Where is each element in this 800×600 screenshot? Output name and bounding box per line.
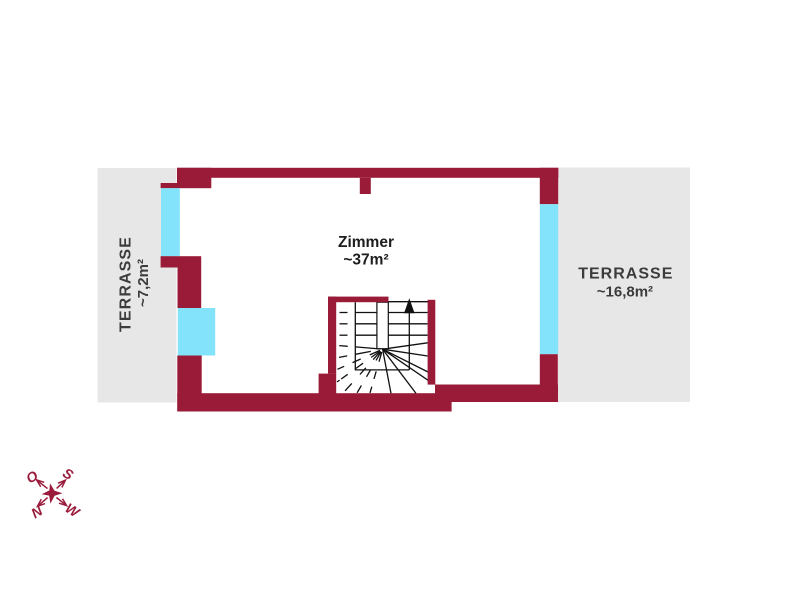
svg-text:~16,8m²: ~16,8m² (597, 283, 653, 300)
svg-text:TERRASSE: TERRASSE (578, 265, 673, 282)
svg-text:Zimmer: Zimmer (338, 234, 394, 251)
svg-text:~37m²: ~37m² (343, 252, 388, 269)
svg-text:~7,2m²: ~7,2m² (135, 259, 152, 307)
svg-text:TERRASSE: TERRASSE (118, 236, 135, 332)
